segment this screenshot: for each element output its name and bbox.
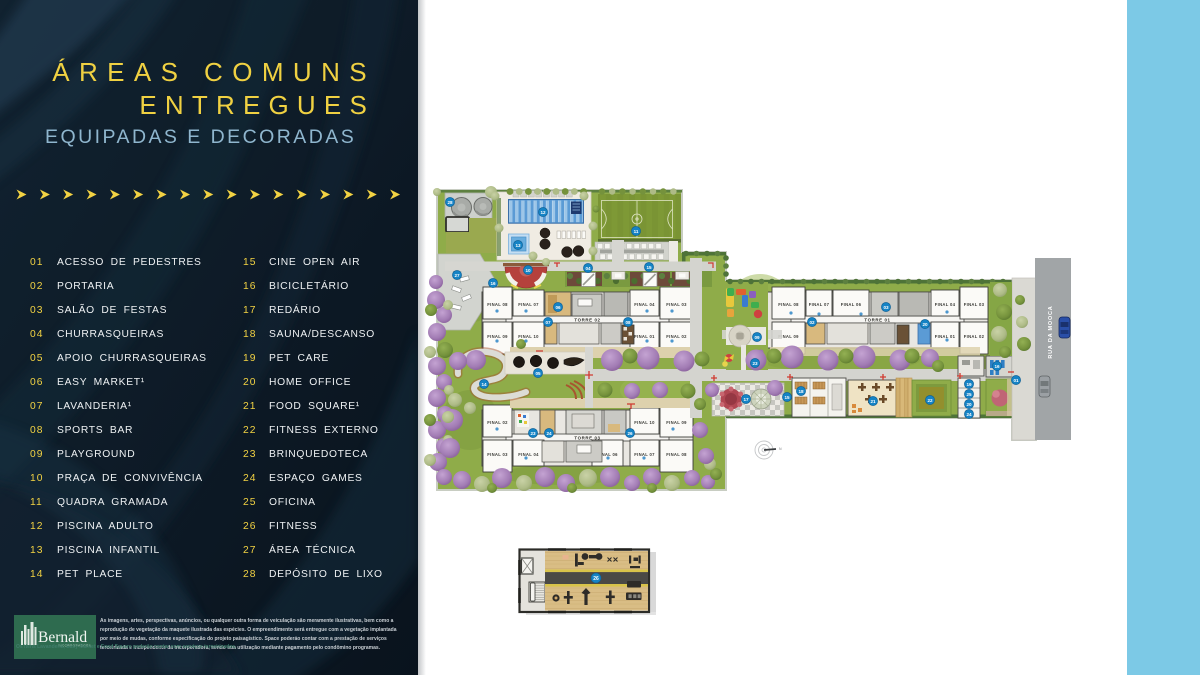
svg-text:FINAL 08: FINAL 08 [778, 302, 799, 307]
svg-text:06: 06 [555, 305, 561, 310]
svg-text:26: 26 [593, 576, 599, 582]
svg-text:17: 17 [743, 397, 749, 402]
svg-text:20: 20 [966, 402, 972, 407]
svg-text:FINAL 04: FINAL 04 [634, 302, 655, 307]
svg-text:TORRE 01: TORRE 01 [864, 318, 890, 323]
svg-text:FINAL 02: FINAL 02 [666, 334, 687, 339]
svg-text:11: 11 [634, 229, 639, 234]
svg-text:25: 25 [966, 392, 972, 397]
svg-text:FINAL 10: FINAL 10 [634, 420, 655, 425]
svg-text:24: 24 [546, 431, 552, 436]
svg-text:03: 03 [883, 305, 889, 310]
svg-text:FINAL 09: FINAL 09 [487, 334, 508, 339]
svg-text:FINAL 02: FINAL 02 [964, 334, 985, 339]
svg-text:14: 14 [481, 382, 487, 387]
svg-text:04: 04 [585, 266, 591, 271]
svg-text:FINAL 04: FINAL 04 [518, 452, 539, 457]
svg-text:FINAL 08: FINAL 08 [666, 452, 687, 457]
svg-text:FINAL 03: FINAL 03 [487, 452, 508, 457]
svg-text:23: 23 [530, 431, 536, 436]
svg-text:10: 10 [525, 268, 531, 273]
svg-text:28: 28 [447, 200, 453, 205]
svg-text:05: 05 [535, 371, 541, 376]
svg-text:27: 27 [454, 273, 460, 278]
svg-text:FINAL 03: FINAL 03 [964, 302, 985, 307]
svg-text:N: N [779, 447, 782, 451]
svg-text:21: 21 [870, 399, 876, 404]
svg-text:09: 09 [754, 335, 760, 340]
svg-text:16: 16 [994, 364, 1000, 369]
svg-text:FINAL 06: FINAL 06 [841, 302, 862, 307]
svg-text:01: 01 [1013, 378, 1019, 383]
svg-text:08: 08 [625, 320, 631, 325]
svg-text:FINAL 03: FINAL 03 [666, 302, 687, 307]
svg-text:07: 07 [545, 320, 551, 325]
svg-text:TORRE 03: TORRE 03 [574, 436, 600, 441]
svg-text:15: 15 [646, 265, 652, 270]
svg-text:13: 13 [515, 243, 521, 248]
svg-text:FINAL 07: FINAL 07 [809, 302, 830, 307]
svg-text:FINAL 10: FINAL 10 [518, 334, 539, 339]
svg-text:22: 22 [927, 398, 933, 403]
svg-text:FINAL 09: FINAL 09 [666, 420, 687, 425]
svg-text:FINAL 07: FINAL 07 [518, 302, 539, 307]
svg-text:02: 02 [809, 320, 815, 325]
svg-text:20: 20 [922, 322, 928, 327]
svg-text:19: 19 [966, 382, 972, 387]
svg-text:24: 24 [966, 412, 972, 417]
svg-text:FINAL 01: FINAL 01 [634, 334, 655, 339]
svg-text:26: 26 [627, 431, 633, 436]
svg-text:15: 15 [784, 395, 790, 400]
svg-text:FINAL 07: FINAL 07 [634, 452, 655, 457]
svg-text:12: 12 [540, 210, 546, 215]
svg-text:FINAL 01: FINAL 01 [935, 334, 956, 339]
svg-text:18: 18 [798, 389, 804, 394]
svg-text:23: 23 [752, 361, 758, 366]
svg-text:16: 16 [490, 281, 496, 286]
svg-text:RUA DA MOOCA: RUA DA MOOCA [1048, 305, 1054, 358]
svg-text:FINAL 02: FINAL 02 [487, 420, 508, 425]
svg-text:TORRE 02: TORRE 02 [574, 318, 600, 323]
svg-text:FINAL 04: FINAL 04 [935, 302, 956, 307]
svg-text:FINAL 08: FINAL 08 [487, 302, 508, 307]
